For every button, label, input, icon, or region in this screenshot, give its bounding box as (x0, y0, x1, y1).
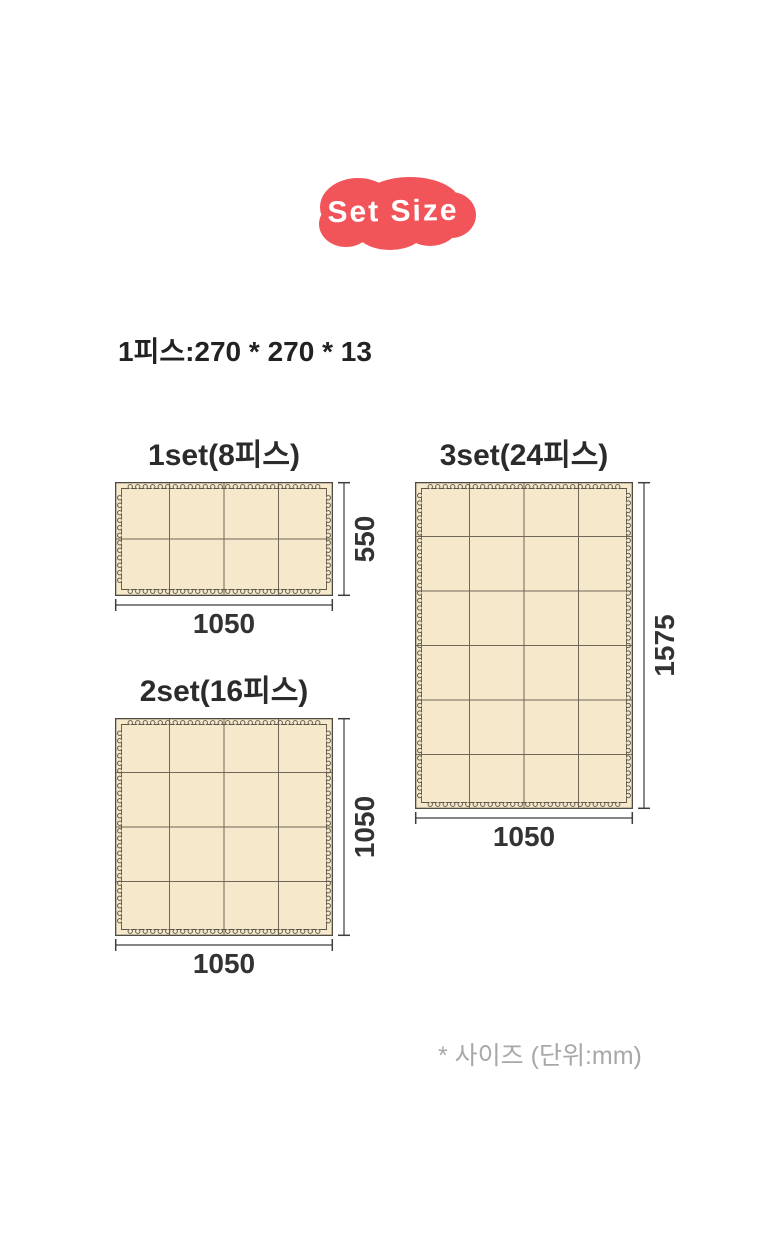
width-dim-label: 1050 (193, 608, 255, 639)
height-dim-label: 1575 (649, 614, 680, 676)
mat-drawing: 5501050 (115, 482, 413, 658)
mat-diagram-2set: 10501050 (115, 718, 413, 998)
mat-title-3set: 3set(24피스) (415, 430, 633, 474)
width-dim-label: 1050 (493, 821, 555, 852)
mat-drawing: 15751050 (415, 482, 713, 871)
mat-title-2set: 2set(16피스) (115, 666, 333, 710)
width-dim-label: 1050 (193, 948, 255, 979)
set-size-badge: Set Size (308, 172, 478, 252)
height-dim-label: 550 (349, 516, 380, 563)
badge-label: Set Size (307, 171, 478, 254)
mat-drawing: 10501050 (115, 718, 413, 998)
product-size-infographic: Set Size 1피스:270 * 270 * 13 1set(8피스) 3s… (0, 0, 780, 1236)
piece-size-text: 1피스:270 * 270 * 13 (118, 330, 372, 370)
mat-title-1set: 1set(8피스) (115, 430, 333, 474)
mat-diagram-1set: 5501050 (115, 482, 413, 658)
height-dim-label: 1050 (349, 796, 380, 858)
mat-diagram-3set: 15751050 (415, 482, 713, 871)
size-unit-note: * 사이즈 (단위:mm) (438, 1036, 642, 1072)
